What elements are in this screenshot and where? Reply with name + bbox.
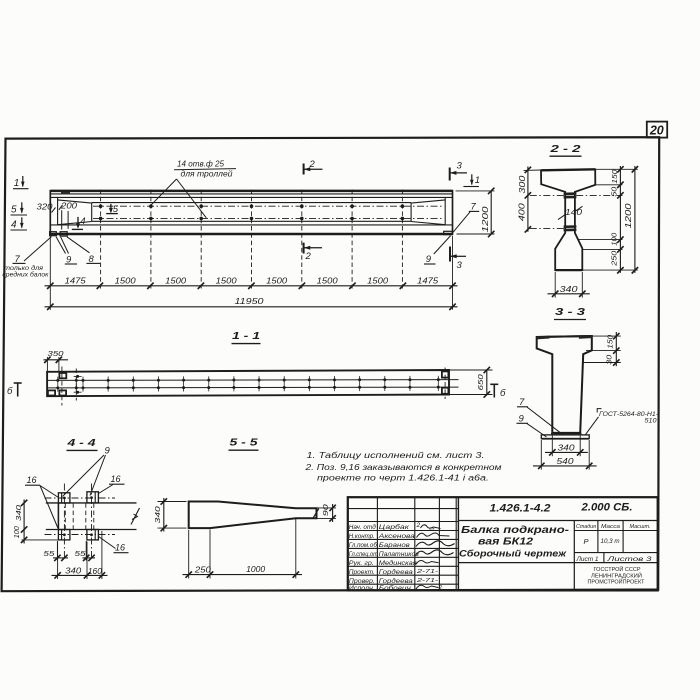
- svg-text:2: 2: [309, 159, 316, 170]
- svg-text:1: 1: [475, 175, 480, 186]
- svg-text:1500: 1500: [216, 277, 238, 286]
- svg-text:1500: 1500: [165, 277, 187, 286]
- svg-text:2: 2: [305, 251, 312, 262]
- svg-text:55: 55: [75, 549, 87, 558]
- svg-text:Исполн.: Исполн.: [349, 585, 375, 592]
- svg-text:11950: 11950: [235, 297, 265, 306]
- svg-text:Проект.: Проект.: [349, 569, 375, 576]
- svg-text:9: 9: [105, 446, 111, 457]
- svg-text:160: 160: [88, 567, 103, 576]
- svg-text:340: 340: [153, 505, 162, 523]
- svg-text:320: 320: [37, 202, 54, 211]
- svg-text:Аксенова: Аксенова: [378, 533, 415, 540]
- svg-text:Лист 1: Лист 1: [575, 556, 598, 563]
- svg-text:90: 90: [321, 503, 330, 516]
- svg-text:250: 250: [194, 565, 212, 574]
- svg-text:650: 650: [476, 373, 485, 390]
- svg-text:340: 340: [558, 444, 576, 453]
- svg-text:9: 9: [426, 254, 432, 265]
- svg-text:55: 55: [43, 549, 55, 558]
- svg-text:Рук. гр.: Рук. гр.: [349, 560, 374, 567]
- svg-text:ГОССТРОЙ СССР: ГОССТРОЙ СССР: [594, 565, 641, 573]
- svg-text:20: 20: [649, 124, 664, 138]
- svg-text:14 отв.ф 25: 14 отв.ф 25: [177, 160, 224, 169]
- svg-text:250: 250: [610, 250, 619, 267]
- svg-text:4: 4: [80, 216, 85, 227]
- svg-text:5: 5: [11, 204, 17, 215]
- svg-text:1.426.1-4.2: 1.426.1-4.2: [490, 502, 551, 514]
- svg-text:3: 3: [457, 161, 463, 172]
- svg-text:510: 510: [645, 418, 658, 424]
- svg-text:100: 100: [12, 525, 21, 538]
- svg-text:ЛЕНИНГРАДСКИЙ: ЛЕНИНГРАДСКИЙ: [591, 571, 642, 579]
- svg-text:проекте по черт 1.426.1-41 i: проекте по черт 1.426.1-41 i а6а.: [317, 473, 489, 482]
- svg-text:2. Поз. 9,16 заказываются в ко: 2. Поз. 9,16 заказываются в конкретном: [304, 463, 502, 472]
- svg-text:Баранов: Баранов: [379, 542, 411, 549]
- svg-text:Гордеева: Гордеева: [379, 577, 413, 585]
- svg-text:Н.контр.: Н.контр.: [349, 533, 375, 540]
- svg-text:вая БК12: вая БК12: [478, 537, 534, 548]
- svg-text:400: 400: [518, 202, 527, 221]
- svg-text:3 - 3: 3 - 3: [555, 306, 585, 318]
- svg-text:1200: 1200: [624, 203, 633, 229]
- svg-text:ГОСТ-5264-80-Н1-: ГОСТ-5264-80-Н1-: [599, 412, 658, 418]
- svg-text:ПРОМСТРОЙПРОЕКТ: ПРОМСТРОЙПРОЕКТ: [588, 578, 646, 586]
- svg-text:1500: 1500: [266, 277, 288, 286]
- svg-text:Листов 3: Листов 3: [606, 556, 652, 563]
- svg-text:30: 30: [605, 354, 614, 365]
- svg-text:Масса: Масса: [601, 524, 620, 530]
- svg-text:Гл.спец.от: Гл.спец.от: [349, 551, 379, 558]
- svg-text:Р: Р: [583, 537, 588, 546]
- svg-text:Провер.: Провер.: [349, 578, 375, 585]
- svg-text:1500: 1500: [367, 277, 389, 286]
- svg-text:2: 2: [438, 585, 442, 591]
- svg-text:100: 100: [610, 232, 619, 246]
- svg-text:340: 340: [65, 567, 82, 576]
- svg-text:Нач. отд: Нач. отд: [349, 523, 376, 531]
- svg-text:540: 540: [557, 457, 575, 466]
- svg-text:3: 3: [457, 260, 463, 271]
- svg-text:2 - 2: 2 - 2: [549, 143, 581, 155]
- svg-text:340: 340: [560, 285, 579, 294]
- svg-text:б: б: [7, 386, 13, 397]
- svg-text:200: 200: [60, 202, 78, 211]
- svg-text:2: 2: [416, 522, 421, 529]
- svg-text:16: 16: [111, 474, 121, 484]
- svg-text:Масшт.: Масшт.: [630, 524, 651, 530]
- svg-text:7: 7: [519, 397, 525, 408]
- svg-text:340: 340: [14, 504, 23, 521]
- svg-text:1000: 1000: [246, 565, 266, 574]
- svg-text:Балка подкрано-: Балка подкрано-: [461, 525, 570, 536]
- svg-text:16: 16: [115, 543, 125, 553]
- svg-text:1475: 1475: [65, 277, 87, 286]
- svg-text:Мединская: Мединская: [379, 559, 417, 567]
- svg-text:1 - 1: 1 - 1: [232, 330, 260, 342]
- svg-text:9: 9: [519, 413, 525, 424]
- svg-text:4 - 4: 4 - 4: [66, 437, 96, 449]
- svg-text:5 - 5: 5 - 5: [230, 437, 258, 449]
- svg-text:Гордеева: Гордеева: [379, 568, 413, 576]
- svg-text:50: 50: [610, 186, 619, 197]
- svg-text:Палатников: Палатников: [379, 551, 419, 558]
- svg-text:для троллей: для троллей: [181, 169, 233, 178]
- svg-text:150: 150: [610, 169, 619, 184]
- svg-text:1: 1: [14, 178, 20, 189]
- svg-text:1500: 1500: [115, 277, 137, 286]
- svg-text:Бобович: Бобович: [379, 584, 412, 592]
- svg-text:Гл.пом.об: Гл.пом.об: [349, 541, 377, 549]
- svg-text:2-71-: 2-71-: [415, 569, 438, 575]
- svg-text:Сборочный чертеж: Сборочный чертеж: [459, 548, 567, 559]
- svg-text:1475: 1475: [417, 277, 439, 286]
- svg-text:10,3 т: 10,3 т: [601, 538, 620, 545]
- svg-text:2-71-: 2-71-: [415, 578, 438, 584]
- svg-text:16: 16: [27, 475, 37, 485]
- svg-text:300: 300: [518, 175, 527, 194]
- svg-text:140: 140: [565, 208, 583, 217]
- svg-text:средних балок: средних балок: [2, 270, 49, 278]
- svg-text:2.000 СБ.: 2.000 СБ.: [580, 502, 632, 514]
- svg-text:5: 5: [113, 204, 119, 215]
- svg-text:1200: 1200: [481, 206, 490, 233]
- svg-text:Стадия: Стадия: [576, 524, 596, 530]
- svg-text:4: 4: [11, 219, 17, 230]
- svg-text:150: 150: [606, 334, 615, 349]
- svg-text:Царбак: Царбак: [379, 523, 410, 531]
- svg-text:б: б: [500, 388, 506, 399]
- svg-text:1500: 1500: [317, 277, 339, 286]
- svg-text:1. Таблицу исполнений см. лис: 1. Таблицу исполнений см. лист 3.: [307, 451, 485, 460]
